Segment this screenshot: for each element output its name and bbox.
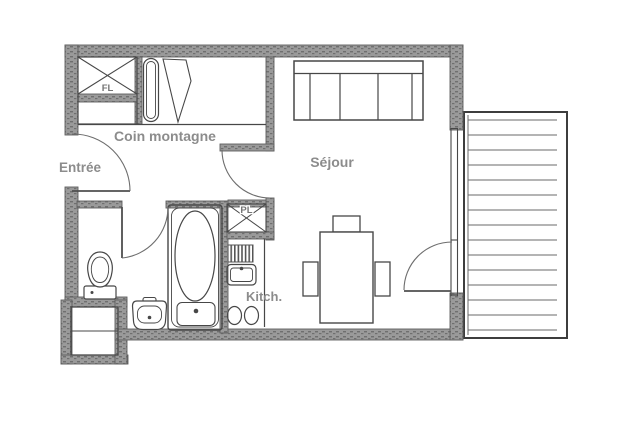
floor-plan-svg: Entrée Coin montagne Séjour Kitch. FL PL [0,0,640,436]
chair-top [333,216,360,232]
wall-left-upper [65,45,78,135]
wall-top [65,45,463,57]
toilet-tank [84,286,116,299]
sejour-area [294,61,423,323]
sejour-door [222,150,270,198]
label-fl-closet: FL [102,83,114,94]
dining-table [303,216,390,323]
wall-bath-top-left [77,201,122,208]
kitchen-area [227,204,266,327]
sofa [294,61,423,120]
label-coin-montagne: Coin montagne [114,128,216,144]
ski-locker [71,307,118,355]
wall-bottom [115,329,463,340]
wall-left-lower [65,187,78,307]
balcony-door [404,242,452,291]
bathtub [168,205,222,330]
fl-closet-shelf [78,94,137,102]
washbasin [133,298,167,330]
wall-closet-divider [135,57,142,124]
doors [72,134,452,291]
wall-hall-stub [220,144,274,151]
label-pl-closet: PL [240,205,252,216]
hotplates [228,307,259,325]
table [320,232,373,323]
wall-sejour-divider [266,57,274,151]
balcony [464,112,567,338]
chair-right [375,262,390,296]
wall-pl-bottom [227,232,274,239]
floor-plan-page: Entrée Coin montagne Séjour Kitch. FL PL [0,0,640,436]
toilet [84,252,116,299]
bathroom-area [84,205,222,330]
label-entree: Entrée [59,160,102,175]
wall-right-lower [450,293,463,340]
sink-faucet [240,267,244,271]
window-bay [451,128,458,296]
chair-left [303,262,318,296]
bathtub-drain [194,309,199,314]
bunk-panel [163,59,191,122]
kitchen-drainer [228,245,253,262]
label-sejour: Séjour [310,154,354,170]
label-kitchen: Kitch. [246,289,282,304]
kitchen-sink [227,265,256,286]
bunk-capsule [144,59,159,122]
wall-right-upper [450,45,463,130]
bunk-capsule-inner [147,62,156,119]
bathroom-door [122,207,168,258]
wall-locker-left [61,300,72,364]
